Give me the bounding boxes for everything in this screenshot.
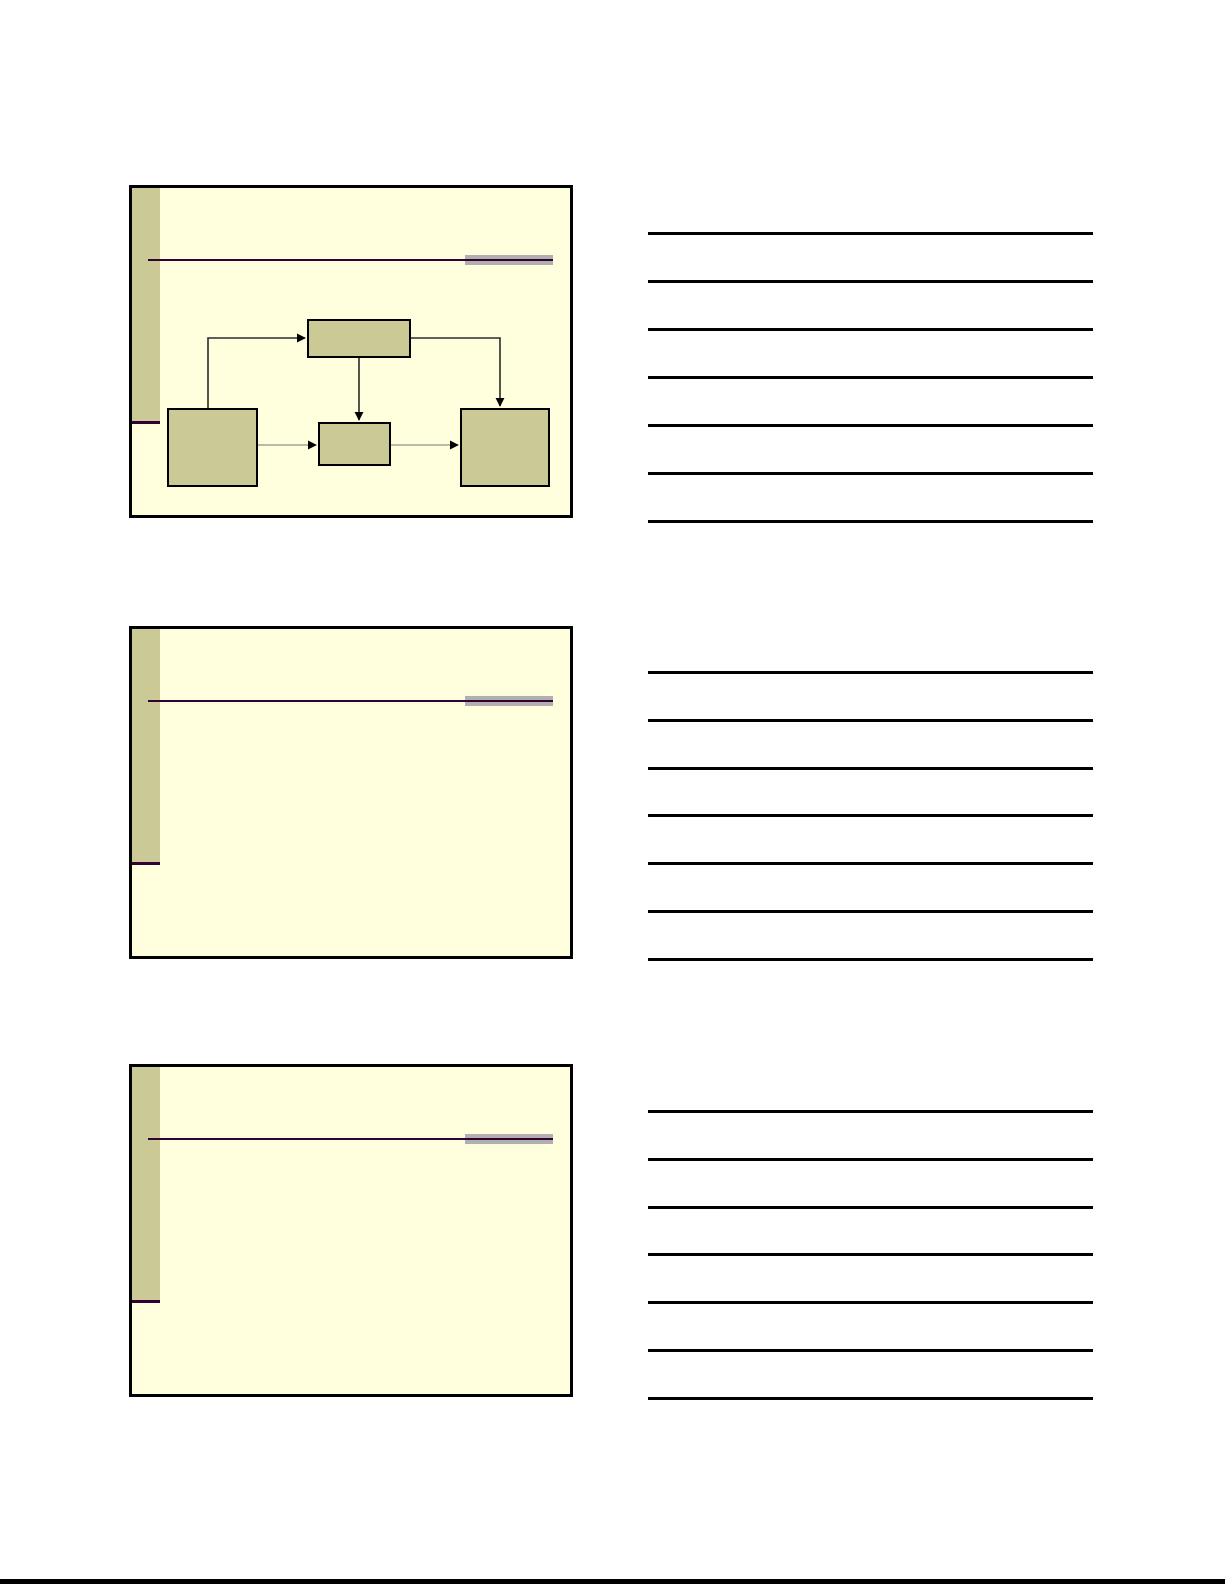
flow-edge-top-to-right: [410, 338, 500, 406]
note-line: [648, 814, 1093, 817]
note-line: [648, 1301, 1093, 1304]
note-line: [648, 719, 1093, 722]
note-line: [648, 862, 1093, 865]
flow-diagram: [132, 188, 570, 515]
slide-2-canvas: [132, 629, 570, 956]
note-line: [648, 232, 1093, 235]
notes-block-1: [648, 232, 1093, 523]
slide-left-accent-underline: [132, 1300, 160, 1303]
slide-thumbnail-1: [129, 185, 573, 518]
note-line: [648, 376, 1093, 379]
slide-left-accent-underline: [132, 862, 160, 865]
flow-node-middle: [319, 423, 390, 465]
note-line: [648, 767, 1093, 770]
slide-thumbnail-3: [129, 1064, 573, 1397]
note-line: [648, 1253, 1093, 1256]
note-line: [648, 472, 1093, 475]
flow-node-left: [168, 409, 257, 486]
slide-title-underline: [148, 1138, 553, 1140]
flow-node-top: [308, 320, 410, 357]
slide-title-underline: [148, 700, 553, 702]
page-bottom-rule: [0, 1579, 1225, 1584]
note-line: [648, 910, 1093, 913]
note-line: [648, 1158, 1093, 1161]
handout-page: [0, 0, 1225, 1585]
slide-left-accent-bar: [132, 1067, 160, 1300]
flow-edge-left-to-top: [208, 338, 305, 409]
note-line: [648, 328, 1093, 331]
flow-node-right: [461, 409, 549, 486]
notes-block-3: [648, 1110, 1093, 1400]
note-line: [648, 958, 1093, 961]
slide-3-canvas: [132, 1067, 570, 1394]
notes-block-2: [648, 671, 1093, 961]
note-line: [648, 1206, 1093, 1209]
note-line: [648, 1397, 1093, 1400]
note-line: [648, 1110, 1093, 1113]
note-line: [648, 424, 1093, 427]
note-line: [648, 1349, 1093, 1352]
slide-1-canvas: [132, 188, 570, 515]
note-line: [648, 280, 1093, 283]
slide-left-accent-bar: [132, 629, 160, 862]
slide-thumbnail-2: [129, 626, 573, 959]
note-line: [648, 671, 1093, 674]
note-line: [648, 520, 1093, 523]
